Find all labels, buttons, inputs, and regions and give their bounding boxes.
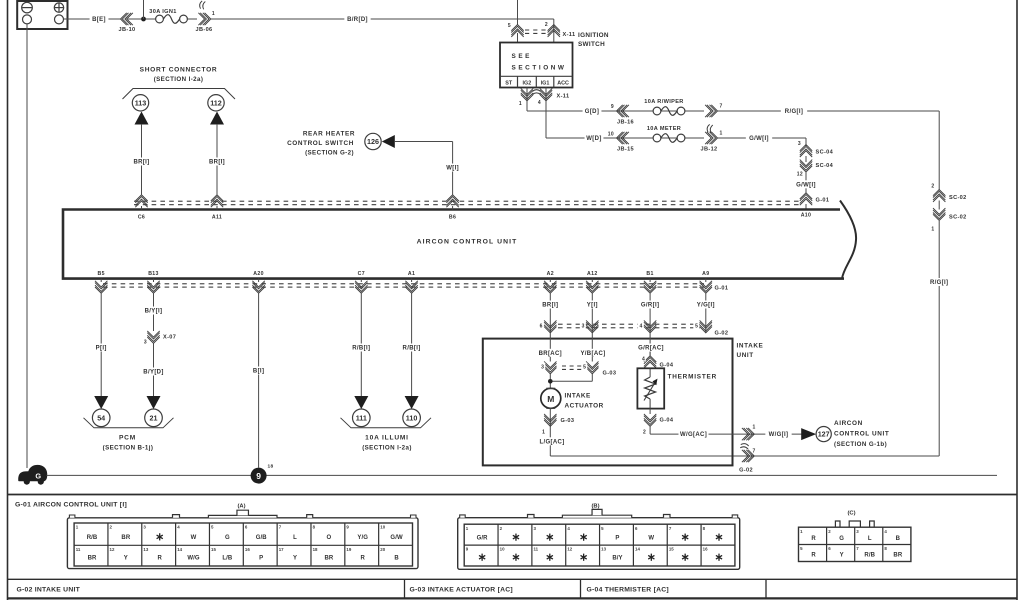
svg-text:(SECTION B-1j): (SECTION B-1j) (103, 445, 154, 452)
svg-text:G-04: G-04 (660, 418, 674, 424)
svg-text:2: 2 (643, 430, 646, 436)
svg-text:Y: Y (124, 556, 128, 562)
svg-text:54: 54 (97, 413, 105, 422)
svg-text:4: 4 (639, 324, 642, 330)
svg-text:18: 18 (313, 547, 318, 552)
svg-text:15: 15 (211, 547, 216, 552)
svg-text:ACC: ACC (557, 80, 569, 86)
svg-text:IG2: IG2 (523, 80, 532, 86)
svg-text:G-04 THERMISTER [AC]: G-04 THERMISTER [AC] (587, 587, 669, 594)
svg-text:14: 14 (635, 547, 640, 552)
svg-text:4: 4 (642, 357, 645, 363)
svg-text:20: 20 (380, 547, 385, 552)
svg-text:126: 126 (367, 137, 379, 146)
svg-text:B[E]: B[E] (92, 17, 106, 23)
svg-text:Y/G: Y/G (357, 535, 368, 541)
svg-text:C7: C7 (358, 271, 365, 277)
svg-text:SC-02: SC-02 (949, 215, 967, 221)
svg-text:R: R (361, 556, 366, 562)
svg-text:P: P (615, 535, 619, 541)
svg-text:4: 4 (538, 100, 541, 106)
svg-text:AIRCON: AIRCON (834, 420, 863, 427)
svg-text:11: 11 (533, 547, 538, 552)
svg-text:G/W[I]: G/W[I] (749, 136, 769, 142)
svg-text:G-01: G-01 (715, 286, 729, 292)
svg-text:W[D]: W[D] (586, 136, 601, 142)
svg-text:B[I]: B[I] (253, 369, 264, 375)
svg-text:R: R (811, 553, 816, 559)
svg-text:AIRCON CONTROL UNIT: AIRCON CONTROL UNIT (417, 239, 518, 246)
svg-text:BR: BR (324, 556, 333, 562)
svg-text:10: 10 (608, 132, 614, 138)
svg-text:JB-06: JB-06 (196, 27, 213, 33)
svg-text:G: G (225, 535, 230, 541)
svg-text:W[I]: W[I] (446, 166, 459, 172)
svg-text:R: R (157, 556, 162, 562)
svg-text:12: 12 (567, 547, 572, 552)
svg-text:JB-16: JB-16 (617, 120, 634, 126)
svg-text:16: 16 (245, 547, 250, 552)
svg-text:9: 9 (256, 471, 261, 481)
svg-text:110: 110 (406, 413, 418, 422)
svg-text:Y: Y (840, 553, 844, 559)
svg-text:L/G[AC]: L/G[AC] (539, 439, 564, 445)
svg-text:Y/B[AC]: Y/B[AC] (580, 351, 605, 357)
svg-text:15: 15 (669, 547, 674, 552)
svg-text:G/R[I]: G/R[I] (641, 303, 659, 309)
svg-text:1: 1 (931, 227, 934, 233)
svg-text:W: W (191, 535, 197, 541)
svg-text:(SECTION I-2a): (SECTION I-2a) (362, 445, 412, 452)
svg-text:6: 6 (540, 324, 543, 330)
svg-text:13: 13 (601, 547, 606, 552)
svg-text:JB-10: JB-10 (119, 27, 136, 33)
svg-text:P[I]: P[I] (96, 346, 107, 352)
svg-text:18: 18 (268, 464, 274, 470)
svg-text:127: 127 (818, 430, 830, 439)
svg-text:10: 10 (500, 547, 505, 552)
svg-text:12: 12 (797, 172, 803, 178)
svg-text:G[D]: G[D] (585, 109, 599, 115)
svg-text:113: 113 (135, 98, 147, 107)
svg-text:R/G[I]: R/G[I] (785, 109, 803, 115)
svg-text:W/G[I]: W/G[I] (769, 432, 789, 438)
svg-text:5: 5 (695, 324, 698, 330)
svg-text:7: 7 (753, 449, 756, 455)
svg-text:A20: A20 (253, 271, 264, 277)
svg-text:G/R[AC]: G/R[AC] (638, 346, 664, 352)
svg-text:W/G: W/G (187, 556, 200, 562)
svg-text:SHORT CONNECTOR: SHORT CONNECTOR (140, 67, 218, 74)
svg-text:10A R/WIPER: 10A R/WIPER (644, 99, 683, 105)
svg-text:SWITCH: SWITCH (578, 41, 605, 48)
svg-text:JB-12: JB-12 (701, 147, 718, 153)
svg-text:W: W (648, 535, 654, 541)
svg-text:G-02: G-02 (739, 468, 753, 474)
svg-text:10: 10 (380, 525, 385, 530)
svg-text:M: M (547, 394, 554, 404)
svg-text:16: 16 (703, 547, 708, 552)
svg-text:1: 1 (212, 11, 215, 17)
svg-text:11: 11 (76, 547, 81, 552)
svg-text:3: 3 (582, 324, 585, 330)
svg-text:JB-15: JB-15 (617, 147, 634, 153)
svg-text:BR[I]: BR[I] (133, 160, 149, 166)
svg-text:19: 19 (346, 547, 351, 552)
svg-text:SC-02: SC-02 (949, 195, 967, 201)
svg-text:P: P (259, 556, 263, 562)
svg-text:UNIT: UNIT (737, 352, 754, 359)
svg-text:BR: BR (121, 535, 130, 541)
svg-text:B/Y[D]: B/Y[D] (143, 370, 163, 376)
svg-text:9: 9 (611, 104, 614, 110)
svg-text:7: 7 (720, 104, 723, 110)
svg-text:A9: A9 (702, 271, 709, 277)
svg-text:3: 3 (798, 141, 801, 147)
svg-text:10A METER: 10A METER (647, 126, 681, 132)
svg-text:(SECTION G-1b): (SECTION G-1b) (834, 441, 887, 448)
svg-text:S E E: S E E (512, 53, 531, 60)
svg-text:L: L (293, 535, 297, 541)
svg-text:5: 5 (508, 23, 511, 29)
svg-text:10A ILLUMI: 10A ILLUMI (365, 435, 409, 442)
svg-text:S E C T I O N W: S E C T I O N W (512, 65, 565, 72)
svg-text:G: G (35, 471, 41, 480)
svg-text:5: 5 (583, 365, 586, 371)
svg-text:B13: B13 (148, 271, 159, 277)
svg-text:X-07: X-07 (163, 335, 176, 341)
svg-text:G-01 AIRCON CONTROL UNIT [I]: G-01 AIRCON CONTROL UNIT [I] (15, 502, 127, 509)
svg-text:3: 3 (144, 340, 147, 346)
svg-text:IGNITION: IGNITION (578, 32, 609, 39)
svg-text:B/Y: B/Y (612, 555, 622, 561)
svg-text:X-11: X-11 (557, 94, 570, 100)
svg-text:R/B: R/B (864, 553, 875, 559)
svg-text:17: 17 (279, 547, 284, 552)
svg-text:1: 1 (753, 425, 756, 431)
svg-text:B/Y[I]: B/Y[I] (145, 309, 163, 315)
svg-text:3: 3 (541, 365, 544, 371)
svg-text:ACTUATOR: ACTUATOR (565, 403, 604, 410)
svg-text:A1: A1 (408, 271, 415, 277)
svg-text:ST: ST (505, 80, 513, 86)
svg-text:SC-04: SC-04 (816, 150, 834, 156)
svg-text:14: 14 (177, 547, 182, 552)
svg-text:G-03: G-03 (603, 371, 617, 377)
svg-text:REAR HEATER: REAR HEATER (303, 131, 355, 138)
svg-text:(SECTION I-2a): (SECTION I-2a) (154, 76, 204, 83)
svg-text:O: O (327, 535, 332, 541)
svg-text:A10: A10 (801, 213, 812, 219)
svg-text:G/W[I]: G/W[I] (796, 182, 816, 188)
svg-text:A2: A2 (547, 271, 554, 277)
svg-text:G-03 INTAKE ACTUATOR [AC]: G-03 INTAKE ACTUATOR [AC] (410, 587, 513, 594)
svg-text:G: G (839, 536, 844, 542)
svg-text:B: B (394, 556, 399, 562)
svg-text:1: 1 (720, 131, 723, 137)
svg-text:C6: C6 (138, 214, 145, 220)
svg-text:CONTROL UNIT: CONTROL UNIT (834, 431, 889, 438)
svg-text:2: 2 (931, 184, 934, 190)
svg-text:BR[I]: BR[I] (209, 160, 225, 166)
svg-text:(C): (C) (847, 511, 855, 517)
svg-text:BR[AC]: BR[AC] (539, 351, 562, 357)
svg-text:B1: B1 (646, 271, 653, 277)
svg-text:G-03: G-03 (561, 418, 575, 424)
svg-text:IG1: IG1 (541, 80, 550, 86)
svg-text:BR[I]: BR[I] (542, 303, 558, 309)
svg-text:L: L (868, 536, 872, 542)
svg-text:W/G[AC]: W/G[AC] (680, 432, 707, 438)
svg-text:1: 1 (542, 430, 545, 436)
svg-text:SC-04: SC-04 (816, 163, 834, 169)
svg-text:X-11: X-11 (563, 32, 576, 38)
svg-text:G/W: G/W (390, 535, 403, 541)
svg-text:G-02 INTAKE UNIT: G-02 INTAKE UNIT (17, 587, 81, 594)
svg-text:G/B: G/B (256, 535, 268, 541)
svg-text:(SECTION G-2): (SECTION G-2) (305, 150, 354, 157)
svg-text:30A IGN1: 30A IGN1 (149, 9, 176, 15)
svg-text:Y/G[I]: Y/G[I] (697, 303, 715, 309)
svg-text:PCM: PCM (119, 435, 136, 442)
svg-text:B/R[D]: B/R[D] (347, 17, 368, 23)
svg-text:BR: BR (893, 553, 902, 559)
svg-text:Y: Y (293, 556, 297, 562)
svg-text:B: B (896, 536, 901, 542)
svg-text:THERMISTER: THERMISTER (668, 374, 718, 381)
svg-text:A12: A12 (587, 271, 598, 277)
svg-text:R/B[I]: R/B[I] (403, 346, 421, 352)
svg-text:BR: BR (88, 556, 97, 562)
svg-text:112: 112 (210, 98, 222, 107)
svg-text:L/B: L/B (222, 556, 233, 562)
svg-text:G/R: G/R (477, 535, 489, 541)
svg-text:21: 21 (150, 413, 158, 422)
svg-text:1: 1 (519, 101, 522, 107)
svg-text:CONTROL SWITCH: CONTROL SWITCH (287, 140, 354, 147)
svg-text:R: R (811, 536, 816, 542)
svg-text:13: 13 (143, 547, 148, 552)
svg-text:R/B[I]: R/B[I] (352, 346, 370, 352)
svg-text:Y[I]: Y[I] (587, 303, 598, 309)
svg-text:G-01: G-01 (816, 198, 830, 204)
svg-text:B6: B6 (449, 214, 456, 220)
svg-text:B5: B5 (98, 271, 105, 277)
svg-text:12: 12 (110, 547, 115, 552)
svg-text:(B): (B) (591, 504, 599, 510)
svg-text:A11: A11 (212, 214, 222, 220)
svg-text:INTAKE: INTAKE (565, 393, 592, 400)
svg-text:(A): (A) (237, 504, 245, 510)
svg-text:2: 2 (545, 22, 548, 28)
svg-text:R/G[I]: R/G[I] (930, 280, 948, 286)
svg-text:INTAKE: INTAKE (737, 343, 764, 350)
svg-text:111: 111 (356, 413, 367, 422)
svg-text:G-02: G-02 (715, 331, 729, 337)
svg-text:R/B: R/B (87, 535, 98, 541)
